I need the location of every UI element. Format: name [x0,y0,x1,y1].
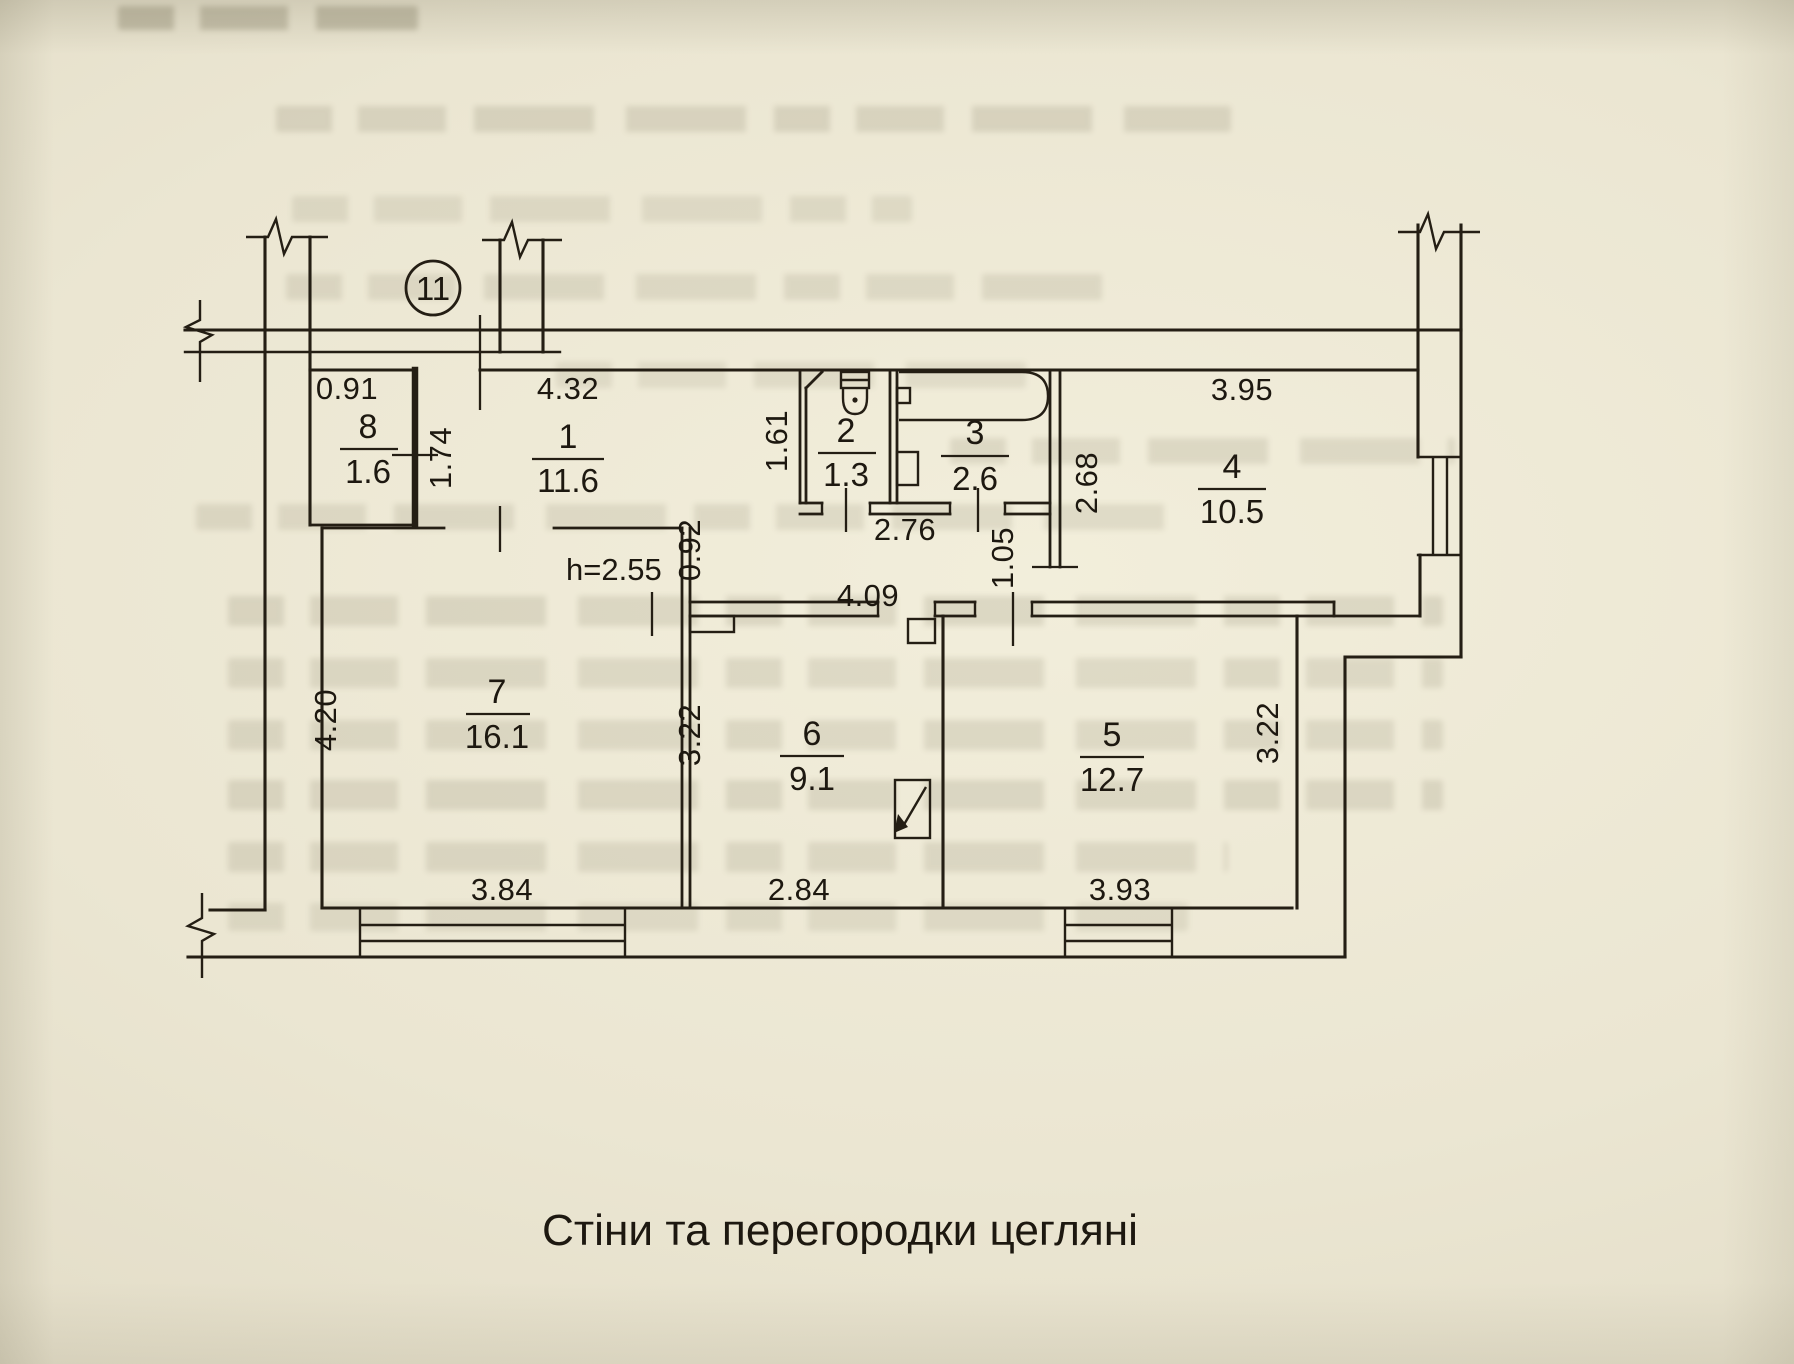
bathtub-icon [899,372,1048,420]
dim-room6-side: 3.22 [672,704,707,766]
dim-wc-side: 1.61 [759,410,794,472]
scanned-floor-plan-page: 11 [0,0,1794,1364]
dim-room4-door: 1.05 [985,527,1020,589]
svg-text:7: 7 [488,673,507,711]
svg-text:11.6: 11.6 [537,462,599,499]
dim-hall-top: 4.32 [537,371,599,406]
hall-bottom-wall [652,592,1420,646]
apartment-number-circle: 11 [406,261,460,315]
window-room4 [1418,457,1461,555]
svg-text:9.1: 9.1 [789,760,835,797]
window-room7 [360,908,625,957]
dim-hall-bottom: 4.09 [837,578,899,613]
room2-walls [800,370,1050,532]
floor-plan-drawing: 11 [0,0,1794,1364]
svg-text:1.6: 1.6 [345,453,391,490]
svg-text:3: 3 [966,414,985,452]
room-label-4: 4 10.5 [1198,448,1266,530]
dim-room6-bottom: 2.84 [768,872,830,907]
toilet-icon [841,372,869,414]
svg-text:1.3: 1.3 [823,456,869,493]
svg-text:8: 8 [359,408,378,446]
door-hinge-icon [897,388,910,403]
dim-room5-side: 3.22 [1250,702,1285,764]
dim-bath-bottom: 2.76 [874,512,936,547]
dim-hall-step: 0.92 [672,519,707,581]
wall-break-icon [1398,214,1480,249]
wall-break-icon [186,300,212,382]
caption-walls-note: Стіни та перегородки цегляні [542,1206,1138,1255]
room-label-1: 1 11.6 [532,418,604,499]
svg-text:6: 6 [803,715,822,753]
dim-room4-side: 2.68 [1069,452,1104,514]
ceiling-height-note: h=2.55 [566,552,662,587]
apartment-number: 11 [416,270,450,307]
svg-text:2.6: 2.6 [952,460,998,497]
dim-closet-side: 1.74 [423,427,458,489]
vent-shaft-icon [894,780,930,838]
wall-break-icon [188,893,214,978]
bottom-exterior-wall [188,908,1345,957]
svg-text:1: 1 [559,418,578,456]
svg-text:10.5: 10.5 [1200,493,1264,530]
wall-break-icon [246,219,328,254]
room-label-5: 5 12.7 [1080,716,1144,798]
door-frame-icon [690,616,734,632]
room-label-6: 6 9.1 [780,715,844,797]
svg-text:12.7: 12.7 [1080,761,1144,798]
svg-text:16.1: 16.1 [465,718,529,755]
room-label-2: 2 1.3 [818,412,876,493]
svg-text:2: 2 [837,412,856,450]
dimension-labels: 0.91 4.32 1.74 1.61 2.76 2.68 1.05 0.92 … [308,371,1285,907]
wall-break-icon [482,222,562,257]
right-exterior-wall [1345,225,1461,957]
door-hinge-icon [897,452,918,485]
dim-room5-bottom: 3.93 [1089,872,1151,907]
top-wall [185,330,1461,370]
door-frame-icon [908,619,935,643]
svg-text:4: 4 [1223,448,1242,486]
dim-closet-width: 0.91 [316,371,378,406]
room-label-8: 8 1.6 [340,408,398,490]
svg-text:5: 5 [1103,716,1122,754]
dim-room4-top: 3.95 [1211,372,1273,407]
dim-room7-bottom: 3.84 [471,872,533,907]
window-room5 [1065,908,1172,957]
dim-room7-side: 4.20 [308,689,343,751]
room-label-3: 3 2.6 [941,414,1009,497]
room-label-7: 7 16.1 [465,673,530,755]
